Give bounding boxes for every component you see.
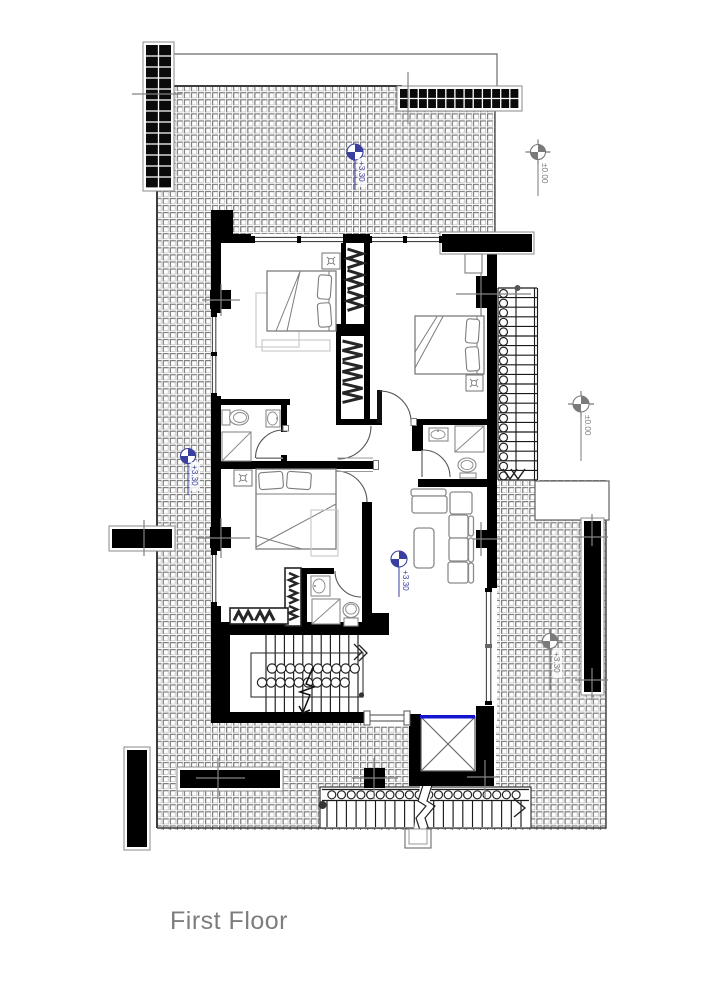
svg-text:±0.00: ±0.00 [583,415,592,436]
svg-text:+3.30: +3.30 [357,161,366,182]
svg-text:+3.30: +3.30 [552,652,561,673]
svg-text:First Floor: First Floor [170,907,288,935]
svg-text:+3.30: +3.30 [401,570,410,591]
svg-text:+3.30: +3.30 [190,465,199,486]
svg-text:±0.00: ±0.00 [540,163,549,184]
